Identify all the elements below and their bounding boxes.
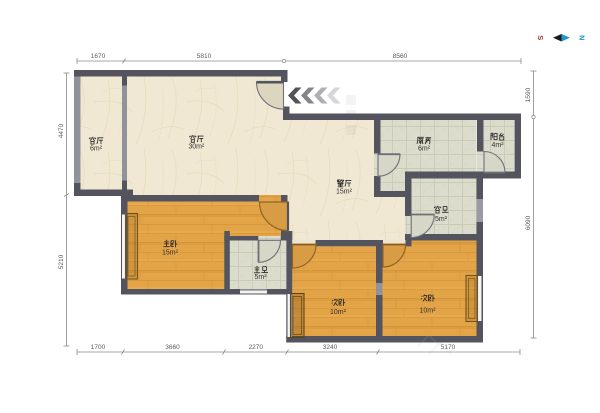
svg-text:5m²: 5m²: [435, 216, 448, 223]
svg-text:10m²: 10m²: [330, 309, 347, 316]
svg-text:4m²: 4m²: [491, 142, 504, 149]
svg-text:30m²: 30m²: [188, 144, 205, 151]
svg-text:5m²: 5m²: [254, 274, 267, 281]
svg-text:1590: 1590: [525, 87, 532, 102]
svg-text:15m²: 15m²: [162, 249, 179, 256]
svg-text:15m²: 15m²: [336, 188, 353, 195]
svg-text:3240: 3240: [323, 344, 338, 351]
svg-text:4470: 4470: [58, 123, 65, 138]
svg-text:6m²: 6m²: [90, 146, 103, 153]
svg-text:6090: 6090: [525, 215, 532, 230]
svg-text:5210: 5210: [58, 254, 65, 269]
svg-text:1670: 1670: [91, 53, 106, 60]
svg-text:2270: 2270: [249, 344, 264, 351]
svg-text:1700: 1700: [91, 344, 106, 351]
svg-text:5810: 5810: [197, 53, 212, 60]
svg-text:N: N: [578, 35, 587, 40]
svg-text:10m²: 10m²: [420, 308, 437, 315]
svg-text:6m²: 6m²: [418, 146, 431, 153]
svg-text:S: S: [536, 35, 545, 40]
svg-text:8560: 8560: [393, 53, 408, 60]
svg-text:3660: 3660: [165, 344, 180, 351]
